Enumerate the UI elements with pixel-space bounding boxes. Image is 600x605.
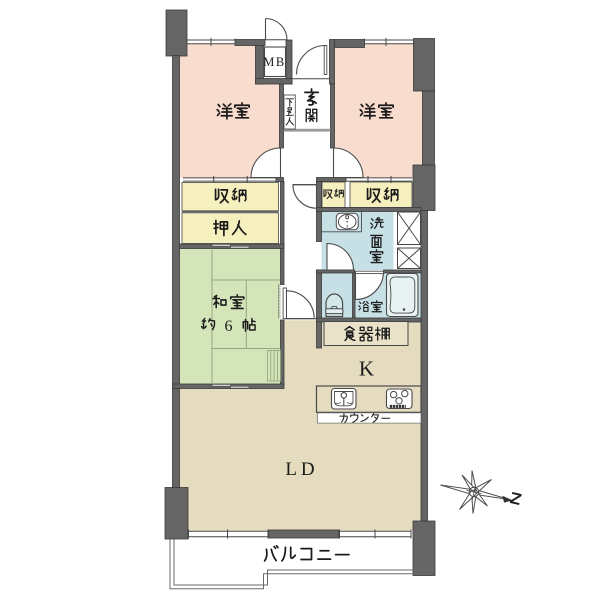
svg-text:K: K — [359, 357, 374, 381]
svg-text:MB: MB — [263, 55, 285, 69]
svg-text:LD: LD — [285, 459, 318, 480]
svg-text:6: 6 — [225, 318, 233, 335]
